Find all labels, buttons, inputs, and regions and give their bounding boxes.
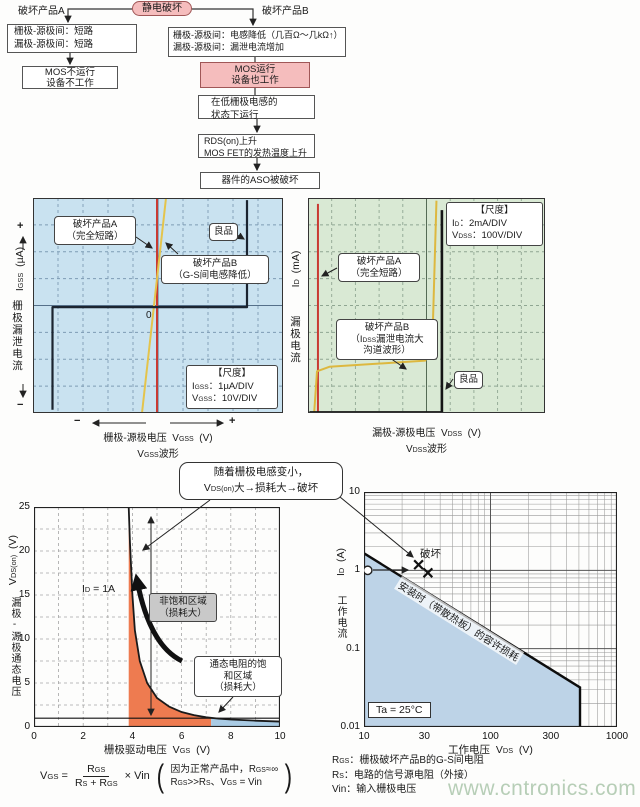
connector-root-to-b — [192, 9, 253, 25]
x-axis-label-bl: 栅极驱动电压 VGS (V) — [34, 742, 280, 757]
region-line: （损耗大） — [199, 682, 277, 694]
formula-multiplier: × Vin — [125, 770, 150, 782]
start-point-marker — [364, 566, 372, 574]
callout-good-right: 良品 — [454, 371, 483, 389]
trace — [314, 201, 436, 413]
gate-voltage-formula: VGS = RGS RS + RGS × Vin ( 因为正常产品中，RGS≈∞… — [40, 762, 294, 791]
tick-label: 0 — [24, 731, 44, 742]
callout-line: 破坏产品A — [343, 256, 415, 268]
node-b4: RDS(on)上升 MOS FET的发热温度上升 — [198, 134, 315, 158]
node-b2-line1: MOS运行 — [201, 64, 309, 75]
x-axis-label-left: 栅极-源极电压 VGSS (V) — [33, 429, 283, 444]
node-b1: 栅极-源极间：电感降低（几百Ω～几kΩ↑） 漏极-源极间：漏泄电流增加 — [168, 27, 346, 57]
node-a1: 栅极-源极间：短路 漏极-源极间：短路 — [7, 24, 137, 53]
region-line: 和区域 — [199, 671, 277, 683]
callout-line: （IDSS漏泄电流大 — [341, 334, 433, 346]
node-b4-line2: MOS FET的发热温度上升 — [204, 148, 314, 160]
node-b5: 器件的ASO被破坏 — [200, 172, 320, 189]
formula-note2: RGS>>RS、VGS = Vin — [170, 776, 278, 790]
formula-denominator: RS + RGS — [73, 777, 120, 790]
node-b1-line2: 漏极-源极间：漏泄电流增加 — [173, 42, 345, 54]
tick-label: 4 — [122, 731, 142, 742]
node-b2-line2: 设备也工作 — [201, 75, 309, 86]
tick-label: 15 — [8, 589, 30, 600]
callout-line: （完全短路） — [59, 231, 131, 243]
branch-b-label: 破坏产品B — [262, 2, 309, 17]
scale-line: ID：2mA/DIV — [452, 218, 537, 231]
callout-line: 破坏产品A — [59, 219, 131, 231]
callout-line: 沟道波形） — [341, 345, 433, 357]
callout-line: （G-S间电感降低） — [166, 270, 264, 282]
bubble-line1: 随着栅极电感变小， — [180, 465, 342, 481]
formula-fraction: RGS RS + RGS — [73, 763, 120, 790]
y-axis-label-right: 漏极电流 — [288, 316, 303, 364]
tick-label: 10 — [349, 731, 379, 742]
tick-label: 6 — [172, 731, 192, 742]
close-paren: ) — [285, 762, 292, 791]
callout-bubble: 随着栅极电感变小， VDS(on)大→损耗大→破坏 — [179, 462, 343, 500]
x-axis-label-br: 工作电压 VDS (V) — [364, 742, 617, 757]
callout-product-b-right: 破坏产品B （IDSS漏泄电流大 沟道波形） — [336, 319, 438, 360]
connector-root-to-a — [68, 9, 132, 22]
callout-good-left: 良品 — [209, 223, 238, 241]
root-node: 静电破坏 — [132, 1, 192, 16]
formula-numerator: RGS — [83, 763, 109, 777]
node-a1-line2: 漏极-源极间：短路 — [14, 39, 136, 52]
scale-line: VGSS：10V/DIV — [192, 393, 272, 406]
node-a1-line1: 栅极-源极间：短路 — [14, 26, 136, 39]
region-line: （损耗大） — [154, 608, 212, 620]
node-b4-line1: RDS(on)上升 — [204, 136, 314, 148]
tick-label: 0.1 — [334, 643, 360, 654]
formula-notes: 因为正常产品中，RGS≈∞ RGS>>RS、VGS = Vin — [170, 763, 278, 790]
tick-label: 1000 — [602, 731, 632, 742]
open-paren: ( — [156, 762, 163, 791]
temperature-note: Ta = 25°C — [368, 702, 431, 718]
node-b3: 在低栅极电感的 状态下运行 — [198, 95, 315, 119]
tick-label: 100 — [476, 731, 506, 742]
bubble-line2: VDS(on)大→损耗大→破坏 — [180, 481, 342, 497]
formula-lhs: VGS = — [40, 770, 68, 782]
branch-a-label: 破坏产品A — [18, 2, 65, 17]
scale-heading: 【尺度】 — [452, 205, 537, 218]
trace — [309, 210, 441, 412]
tick-label: 30 — [409, 731, 439, 742]
node-a2-line2: 设备不工作 — [23, 79, 117, 90]
node-b3-line1: 在低栅极电感的 — [211, 97, 314, 110]
infographic-root: 破坏产品A 静电破坏 破坏产品B 栅极-源极间：短路 漏极-源极间：短路 栅极-… — [0, 0, 640, 807]
y-axis-symbol-br: ID (A) — [335, 522, 347, 602]
tick-label: 5 — [8, 677, 30, 688]
x-minus-sign: − — [74, 415, 80, 427]
tick-label: 2 — [73, 731, 93, 742]
callout-line: 破坏产品B — [166, 258, 264, 270]
callout-product-a-right: 破坏产品A （完全短路） — [338, 253, 420, 282]
x-plus-sign: + — [229, 415, 235, 427]
y-axis-label-left: 栅极漏泄电流 — [10, 300, 25, 372]
curve-label-id1a: ID = 1A — [82, 583, 115, 595]
region-line: 非饱和区域 — [154, 596, 212, 608]
scale-box-left: 【尺度】 IGSS：1µA/DIV VGSS：10V/DIV — [186, 365, 278, 409]
node-b3-line2: 状态下运行 — [211, 110, 314, 123]
formula-note1: 因为正常产品中，RGS≈∞ — [170, 763, 278, 777]
tick-label: 20 — [8, 545, 30, 556]
aso-chart — [364, 492, 617, 727]
damage-label: 破坏 — [420, 546, 441, 561]
tick-label: 25 — [8, 501, 30, 512]
tick-label: 300 — [536, 731, 566, 742]
zero-label: 0 — [146, 310, 152, 321]
region-line: 通态电阻的饱 — [199, 659, 277, 671]
node-b2: MOS运行 设备也工作 — [200, 62, 310, 88]
callout-line: （完全短路） — [343, 268, 415, 280]
scale-box-right: 【尺度】 ID：2mA/DIV VDSS：100V/DIV — [446, 202, 543, 246]
x-axis-label-right: 漏极-源极电压 VDSS (V) — [308, 424, 545, 439]
callout-line: 破坏产品B — [341, 322, 433, 334]
scale-line: IGSS：1µA/DIV — [192, 381, 272, 394]
node-b1-line1: 栅极-源极间：电感降低（几百Ω～几kΩ↑） — [173, 30, 345, 42]
y-axis-symbol-right: ID (mA) — [290, 229, 302, 309]
waveform-title-left: VGSS波形 — [33, 445, 283, 460]
waveform-title-right: VDSS波形 — [308, 440, 545, 455]
region-label-saturated: 通态电阻的饱 和区域 （损耗大） — [194, 656, 282, 697]
tick-label: 10 — [270, 731, 290, 742]
y-minus-sign: − — [17, 399, 23, 411]
node-a2: MOS不运行 设备不工作 — [22, 66, 118, 89]
y-plus-sign: + — [17, 220, 23, 232]
y-axis-label-br: 工作电流 — [333, 595, 348, 639]
region-label-unsaturated: 非饱和区域 （损耗大） — [149, 593, 217, 622]
y-axis-symbol-left: IGSS (µA) — [14, 229, 26, 309]
tick-label: 0 — [8, 721, 30, 732]
tick-label: 10 — [8, 633, 30, 644]
symbol-legend: RGS：栅极破坏产品B的G-S间电阻 RS：电路的信号源电阻（外接） Vin：输… — [332, 754, 484, 798]
allowable-region-fill — [364, 553, 580, 727]
scale-line: VDSS：100V/DIV — [452, 230, 537, 243]
scale-heading: 【尺度】 — [192, 368, 272, 381]
legend-line-vin: Vin：输入栅极电压 — [332, 783, 484, 798]
legend-line-rs: RS：电路的信号源电阻（外接） — [332, 769, 484, 784]
callout-product-b-left: 破坏产品B （G-S间电感降低） — [161, 255, 269, 284]
tick-label: 0.01 — [334, 721, 360, 732]
tick-label: 8 — [221, 731, 241, 742]
tick-label: 1 — [334, 564, 360, 575]
callout-product-a-left: 破坏产品A （完全短路） — [54, 216, 136, 245]
